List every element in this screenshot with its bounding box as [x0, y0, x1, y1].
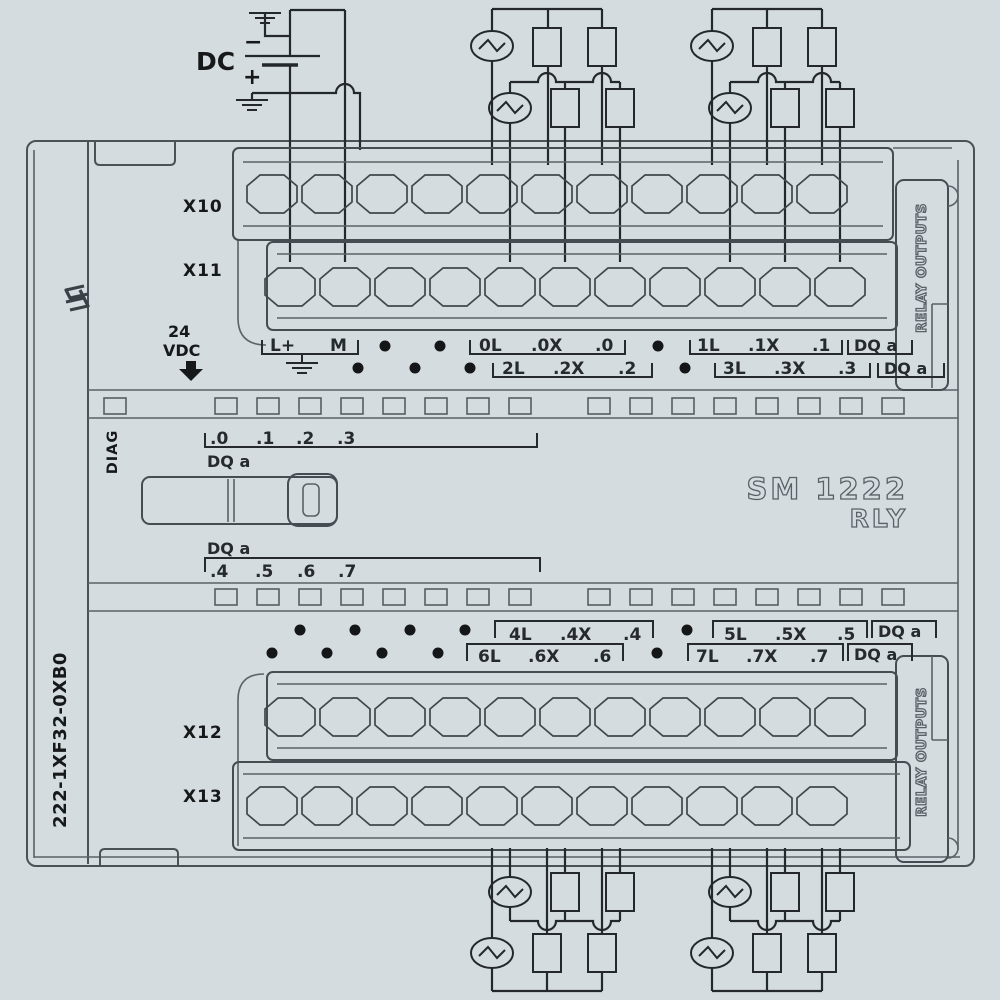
svg-text:M: M	[330, 336, 347, 356]
svg-text:.2: .2	[296, 429, 314, 449]
svg-text:DQ a: DQ a	[854, 336, 897, 355]
svg-text:.5X: .5X	[775, 625, 806, 645]
svg-text:.0: .0	[595, 336, 613, 356]
svg-text:.0X: .0X	[531, 336, 562, 356]
svg-text:DQ a: DQ a	[207, 539, 250, 558]
svg-text:.4X: .4X	[560, 625, 591, 645]
svg-text:.5: .5	[837, 625, 855, 645]
wiring-diagram: RELAY OUTPUTS RELAY OUTPUTS DC − +	[0, 0, 1000, 1000]
relay-outputs-label-bottom: RELAY OUTPUTS	[914, 687, 930, 817]
svg-text:.7: .7	[338, 562, 356, 582]
svg-text:.6: .6	[297, 562, 315, 582]
svg-text:L+: L+	[270, 336, 295, 356]
svg-text:.1: .1	[256, 429, 274, 449]
svg-text:6L: 6L	[478, 647, 501, 667]
svg-text:5L: 5L	[724, 625, 747, 645]
svg-text:DQ a: DQ a	[854, 645, 897, 664]
minus-sign: −	[244, 30, 262, 55]
svg-text:.3: .3	[337, 429, 355, 449]
connector-x12-label: X12	[183, 723, 223, 743]
svg-text:.2X: .2X	[553, 359, 584, 379]
svg-text:.7X: .7X	[746, 647, 777, 667]
part-number: 222-1XF32-0XB0	[50, 652, 71, 828]
connector-x11-label: X11	[183, 261, 223, 281]
svg-text:.7: .7	[810, 647, 828, 667]
voltage-vdc: VDC	[163, 341, 200, 360]
plus-sign: +	[243, 65, 261, 90]
svg-text:DQ a: DQ a	[207, 452, 250, 471]
svg-text:.3X: .3X	[774, 359, 805, 379]
svg-text:3L: 3L	[723, 359, 746, 379]
svg-text:.6X: .6X	[528, 647, 559, 667]
svg-text:2L: 2L	[502, 359, 525, 379]
svg-text:.1X: .1X	[748, 336, 779, 356]
model-line2: RLY	[850, 504, 908, 533]
wiring-diagram-page: RELAY OUTPUTS RELAY OUTPUTS DC − +	[0, 0, 1000, 1000]
diag-label: DIAG	[105, 430, 121, 475]
dc-label: DC	[196, 47, 235, 76]
svg-text:.5: .5	[255, 562, 273, 582]
svg-text:7L: 7L	[696, 647, 719, 667]
connector-x10-label: X10	[183, 197, 223, 217]
svg-text:.2: .2	[618, 359, 636, 379]
svg-text:.1: .1	[812, 336, 830, 356]
voltage-24: 24	[168, 322, 190, 341]
svg-text:4L: 4L	[509, 625, 532, 645]
svg-text:.6: .6	[593, 647, 611, 667]
svg-text:.3: .3	[838, 359, 856, 379]
svg-text:DQ a: DQ a	[878, 622, 921, 641]
model-line1: SM 1222	[746, 472, 908, 506]
svg-text:.4: .4	[623, 625, 641, 645]
svg-text:.0: .0	[210, 429, 228, 449]
svg-text:.4: .4	[210, 562, 228, 582]
svg-text:0L: 0L	[479, 336, 502, 356]
svg-text:1L: 1L	[697, 336, 720, 356]
connector-x13-label: X13	[183, 787, 223, 807]
svg-text:DQ a: DQ a	[884, 359, 927, 378]
relay-outputs-label-top: RELAY OUTPUTS	[914, 203, 930, 333]
